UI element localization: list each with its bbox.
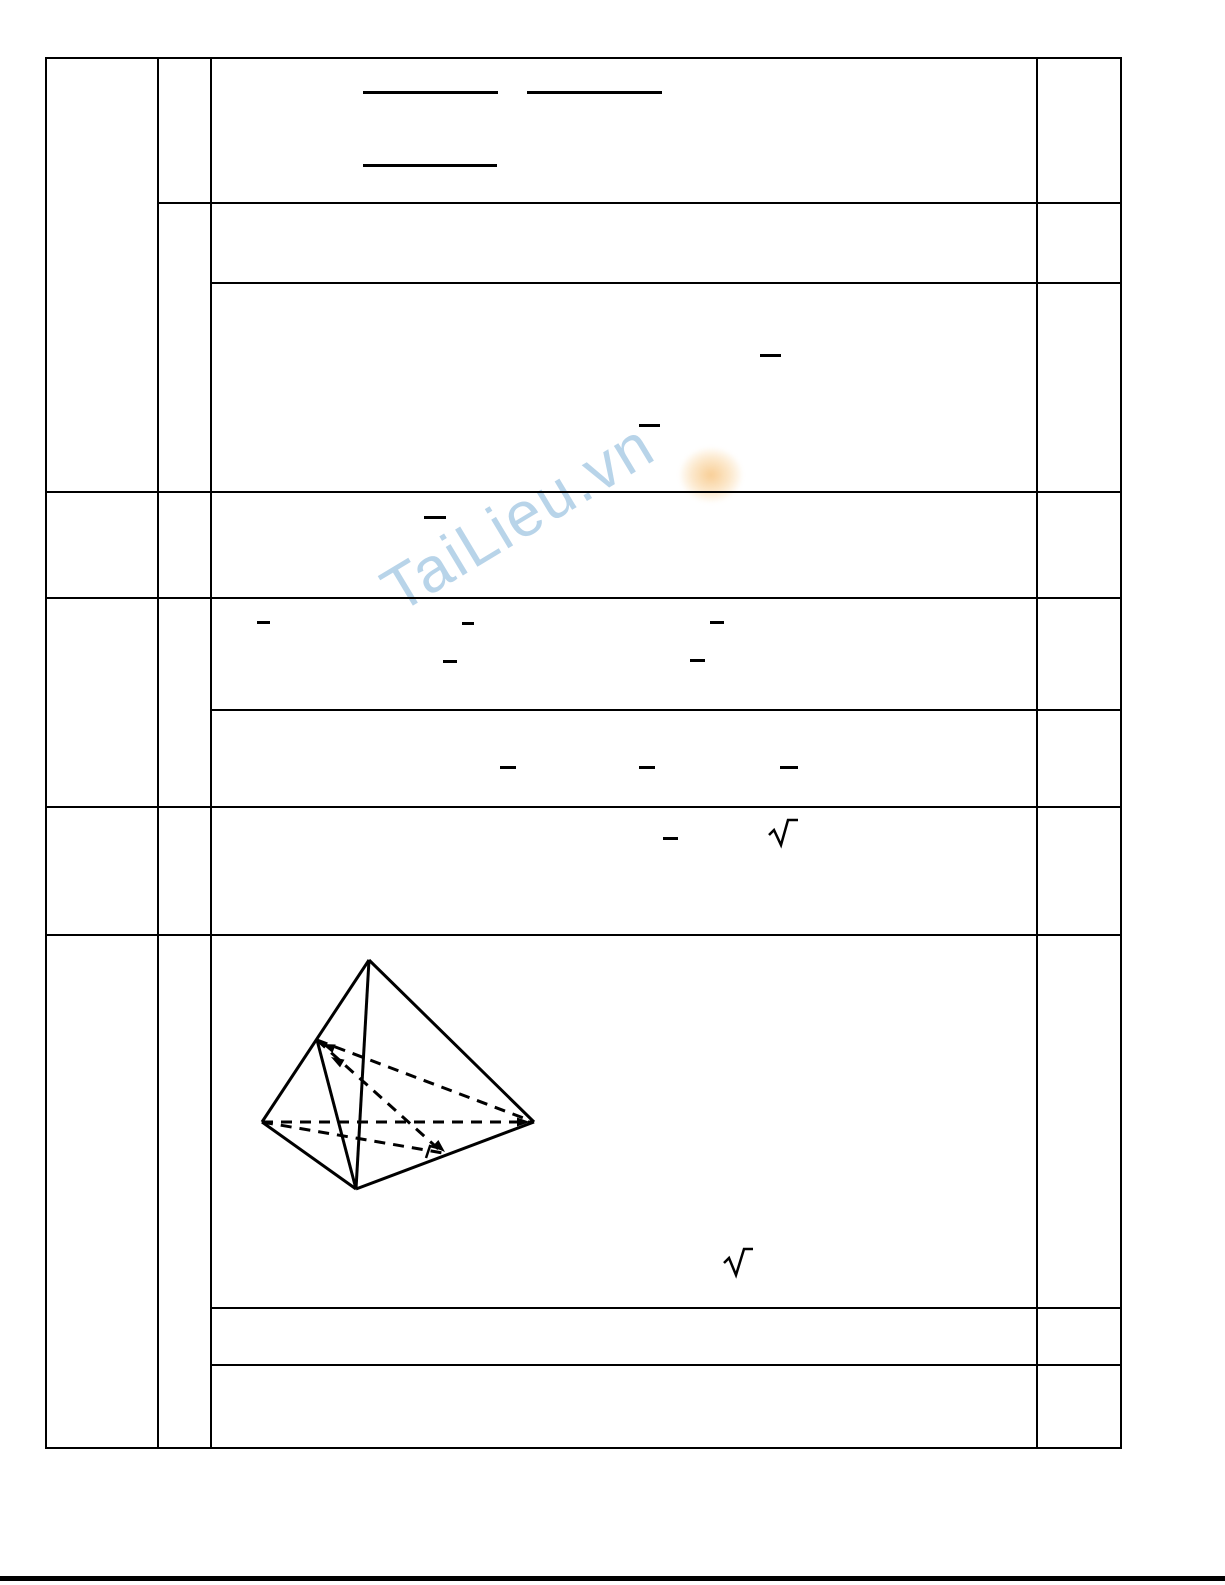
fraction-bar-fragment bbox=[363, 164, 497, 167]
fraction-bar-fragment bbox=[363, 91, 498, 94]
solution-content-column bbox=[210, 57, 1036, 1447]
math-dash-fragment bbox=[760, 354, 781, 357]
table-grid-vline bbox=[157, 57, 159, 1449]
math-dash-fragment bbox=[710, 621, 724, 624]
scanned-answer-key-page: TaiLieu.vn bbox=[0, 0, 1225, 1585]
table-grid-vline bbox=[1036, 57, 1038, 1449]
fraction-bar-fragment bbox=[527, 91, 662, 94]
table-grid-vline bbox=[210, 57, 212, 1449]
table-grid-hline bbox=[157, 202, 1122, 204]
table-grid-hline bbox=[45, 1447, 1122, 1449]
math-dash-fragment bbox=[257, 621, 270, 624]
table-grid-hline bbox=[45, 57, 1122, 59]
math-dash-fragment bbox=[639, 766, 655, 769]
question-number-column bbox=[45, 57, 157, 1447]
math-dash-fragment bbox=[443, 660, 457, 663]
math-dash-fragment bbox=[462, 622, 474, 625]
table-grid-hline bbox=[45, 491, 1122, 493]
table-grid-hline bbox=[210, 282, 1122, 284]
points-column bbox=[1036, 57, 1120, 1447]
part-label-column bbox=[157, 57, 210, 1447]
math-dash-fragment bbox=[690, 659, 705, 662]
table-grid-vline bbox=[1120, 57, 1122, 1449]
table-grid-hline bbox=[210, 1364, 1122, 1366]
math-dash-fragment bbox=[500, 766, 516, 769]
page-footer-rule bbox=[0, 1576, 1225, 1581]
table-grid-hline bbox=[210, 709, 1122, 711]
table-grid-hline bbox=[45, 597, 1122, 599]
math-dash-fragment bbox=[780, 766, 798, 769]
table-grid-hline bbox=[210, 1307, 1122, 1309]
math-dash-fragment bbox=[424, 516, 446, 519]
math-dash-fragment bbox=[663, 837, 678, 840]
table-grid-hline bbox=[45, 934, 1122, 936]
math-dash-fragment bbox=[639, 424, 660, 427]
table-grid-vline bbox=[45, 57, 47, 1449]
table-grid-hline bbox=[45, 806, 1122, 808]
